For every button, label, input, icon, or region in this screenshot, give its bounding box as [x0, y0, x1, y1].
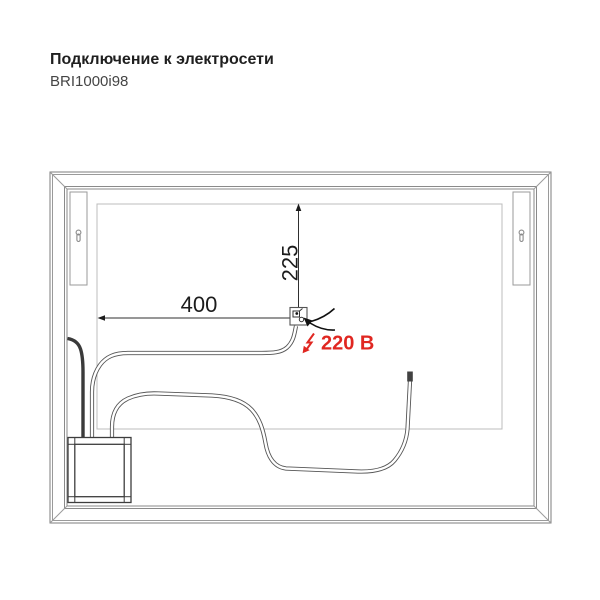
mains-cable: [68, 339, 84, 439]
horizontal-dimension-label: 400: [181, 292, 218, 317]
leader-arrow-icon: [304, 309, 336, 331]
mounting-bracket-right: [513, 192, 530, 285]
horizontal-dimension: 400: [98, 292, 290, 321]
arrow-left-icon: [98, 315, 106, 321]
keyhole-icon: [76, 230, 81, 241]
page: Подключение к электросети BRI1000i98: [0, 0, 600, 600]
voltage-text: 220 В: [321, 333, 374, 355]
lightning-icon: [303, 334, 314, 354]
keyhole-icon: [519, 230, 524, 241]
power-cable: [92, 326, 296, 438]
power-terminal: [290, 308, 307, 326]
led-cable: [112, 372, 413, 472]
mounting-bracket-left: [70, 192, 87, 285]
driver-box: [68, 438, 131, 503]
vertical-dimension: 225: [278, 204, 303, 308]
arrow-up-icon: [296, 204, 302, 212]
power-voltage-label: 220 В: [303, 333, 375, 355]
cable-connector-tip: [407, 372, 413, 382]
wiring-diagram: 225 400: [0, 0, 600, 600]
vertical-dimension-label: 225: [278, 245, 303, 282]
